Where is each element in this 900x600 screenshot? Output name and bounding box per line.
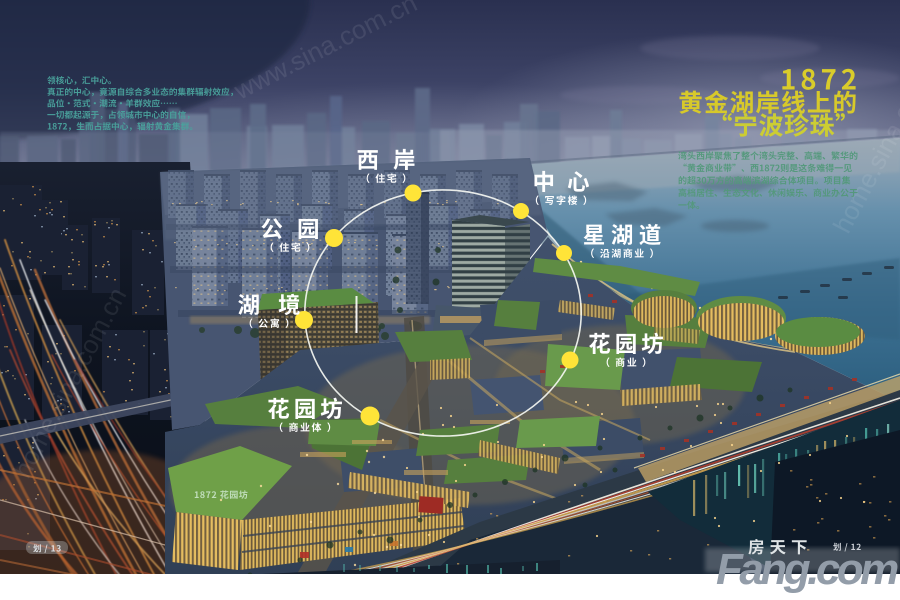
- svg-text:Fang.com: Fang.com: [716, 545, 898, 594]
